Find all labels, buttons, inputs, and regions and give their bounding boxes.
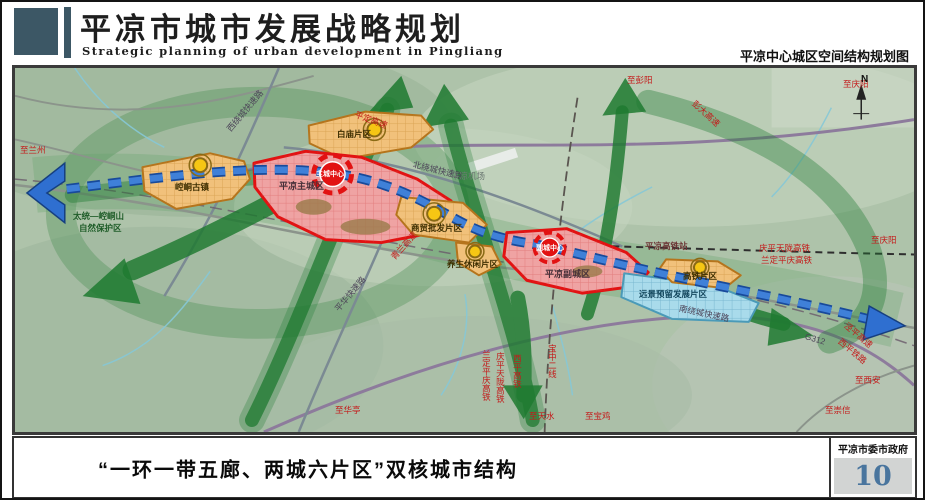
zone-label-hsr-district: 高铁片区	[683, 272, 717, 281]
page-subtitle-en: Strategic planning of urban development …	[82, 44, 504, 58]
core-label-main-center: 主城中心	[316, 171, 344, 179]
zone-label-kongtong-old-town: 崆峒古镇	[175, 183, 209, 192]
dest-label-xian: 至西安	[855, 376, 881, 385]
agency-box: 平凉市委市政府 10	[829, 438, 915, 497]
zone-label-main-city: 平凉主城区	[279, 182, 324, 192]
dest-label-tianshui: 至天水	[529, 412, 555, 421]
rail-label-xiping-hsr-vertical: 西平高铁	[512, 354, 521, 388]
compass-north-label: N	[861, 74, 868, 85]
reserve-label-line2: 自然保护区	[79, 224, 122, 233]
dest-label-chongxin: 至崇信	[825, 406, 851, 415]
structure-caption: “一环一带五廊、两城六片区”双核城市结构	[98, 453, 518, 482]
page: 平凉市城市发展战略规划 Strategic planning of urban …	[0, 0, 925, 500]
zone-label-trade-wholesale: 商贸批发片区	[411, 224, 462, 233]
caption-bar: “一环一带五廊、两城六片区”双核城市结构 平凉市委市政府 10	[12, 436, 917, 499]
core-label-sub-center: 副城中心	[536, 245, 564, 253]
zone-label-future-reserve: 远景预留发展片区	[639, 290, 707, 299]
map-panel: 至兰州 西绕城快速路 平定高速 北绕城快速路 白庙片区 至彭阳 彭大高速 至庆阳…	[12, 65, 917, 435]
page-title: 平凉市城市发展战略规划	[80, 4, 465, 49]
poi-label-hsr-station: 平凉高铁站	[645, 242, 688, 251]
dest-label-baoji: 至宝鸡	[585, 412, 611, 421]
rail-label-baozhong-line2: 宝中二线	[547, 344, 556, 378]
reserve-label-line1: 太统—崆峒山	[73, 212, 124, 221]
dest-label-huating: 至华亭	[335, 406, 361, 415]
dest-label-qingyang-right: 至庆阳	[871, 236, 897, 245]
poi-label-airport: 平凉机场	[451, 172, 485, 181]
rail-label-ldpq-hsr: 兰定平庆高铁	[761, 256, 812, 265]
dest-label-pengyang: 至彭阳	[627, 76, 653, 85]
dest-label-lanzhou: 至兰州	[20, 146, 46, 155]
page-number: 10	[834, 458, 912, 494]
rail-label-qptl-hsr: 庆平天陇高铁	[759, 244, 810, 253]
rail-label-ldpq-hsr-vertical: 兰定平庆高铁	[481, 350, 490, 401]
zone-label-wellness-leisure: 养生休闲片区	[447, 260, 498, 269]
logo-divider	[64, 7, 71, 58]
agency-name: 平凉市委市政府	[831, 438, 915, 458]
rail-label-qptl-hsr-vertical: 庆平天陇高铁	[495, 352, 504, 403]
city-logo	[14, 8, 58, 55]
zone-label-baimiao: 白庙片区	[337, 130, 371, 139]
map-subtitle: 平凉中心城区空间结构规划图	[740, 46, 909, 65]
zone-label-sub-city: 平凉副城区	[545, 270, 590, 280]
